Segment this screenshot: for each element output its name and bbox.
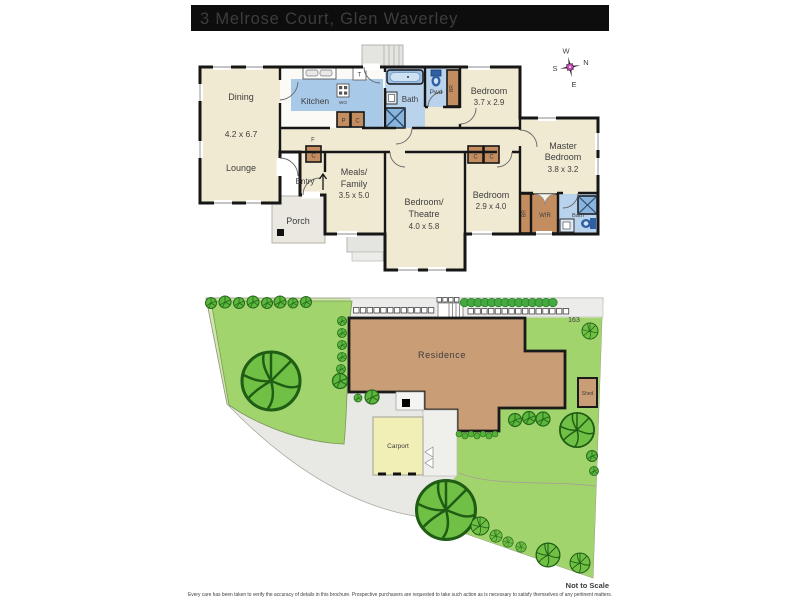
bush-icon xyxy=(219,296,231,308)
tree-icon xyxy=(582,323,598,339)
brochure-page: 3 Melrose Court, Glen Waverley Porch xyxy=(0,0,800,600)
bush-icon xyxy=(338,341,347,350)
vanity-icon xyxy=(386,92,397,104)
room-label-meals-2: Family xyxy=(341,179,368,189)
marker-wall-oven: WO xyxy=(339,100,347,105)
title-bar: 3 Melrose Court, Glen Waverley xyxy=(191,5,609,31)
tree-icon xyxy=(471,517,489,535)
ensuite-shower-icon xyxy=(578,196,597,214)
room-label-powder: Pwd xyxy=(430,89,443,96)
room-label-wir: WIR xyxy=(539,213,551,219)
floor-plan: Porch xyxy=(197,45,601,273)
shed: Shed xyxy=(578,378,597,407)
room-label-meals-1: Meals/ xyxy=(341,167,368,177)
bathtub-icon xyxy=(387,70,423,84)
bush-icon xyxy=(338,353,347,362)
bush-icon xyxy=(288,298,298,308)
tree-icon xyxy=(516,542,526,552)
bush-icon xyxy=(337,365,346,374)
room-label-bath: Bath xyxy=(402,95,418,104)
bush-icon xyxy=(536,412,550,426)
disclaimer: Every care has been taken to verify the … xyxy=(188,592,612,598)
shower-icon xyxy=(385,108,405,128)
toilet-icon xyxy=(431,70,441,87)
marker-fridge: F xyxy=(311,138,315,144)
room-label-porch: Porch xyxy=(286,216,310,226)
tree-icon xyxy=(242,352,300,410)
marker-cupboard-hall-1: C xyxy=(473,155,478,161)
bush-icon xyxy=(338,329,347,338)
room-dims-theatre: 4.0 x 5.8 xyxy=(409,222,440,231)
page-title: 3 Melrose Court, Glen Waverley xyxy=(200,10,458,28)
room-label-lounge: Lounge xyxy=(226,163,256,173)
room-label-theatre-2: Theatre xyxy=(408,209,439,219)
garden-hedge-row xyxy=(460,298,557,307)
marker-pantry: P xyxy=(341,119,345,125)
marker-robe-ensuite: BR xyxy=(522,210,528,217)
marker-cupboard-hall-2: C xyxy=(489,155,494,161)
room-dims-bedroom3: 2.9 x 4.0 xyxy=(476,202,507,211)
rear-step xyxy=(396,392,424,410)
marker-cupboard-entry: C xyxy=(311,154,316,160)
bush-icon xyxy=(274,296,286,308)
room-label-ensuite: Bath xyxy=(572,213,584,219)
tree-icon xyxy=(536,543,560,567)
tree-icon xyxy=(560,413,594,447)
room-dims-meals: 3.5 x 5.0 xyxy=(339,191,370,200)
room-label-entry: Entry xyxy=(296,177,315,186)
bush-icon xyxy=(333,374,348,389)
carport: Carport xyxy=(373,417,423,475)
bush-icon xyxy=(262,298,273,309)
bush-icon xyxy=(365,390,379,404)
bush-icon xyxy=(354,394,362,402)
room-label-dining: Dining xyxy=(228,92,254,102)
marker-robe-hall: BR xyxy=(449,85,455,92)
room-dims-bedroom2: 3.7 x 2.9 xyxy=(474,98,505,107)
compass-rose-icon: W N E S xyxy=(552,47,588,90)
room-dims-dining: 4.2 x 6.7 xyxy=(225,129,258,139)
shed-label: Shed xyxy=(582,391,594,397)
room-label-theatre-1: Bedroom/ xyxy=(404,197,444,207)
rear-gate xyxy=(438,303,463,318)
bush-icon xyxy=(234,298,245,309)
ensuite-vanity-icon xyxy=(560,219,574,232)
footer: Not to Scale Every care has been taken t… xyxy=(188,581,612,598)
room-dims-master: 3.8 x 3.2 xyxy=(548,165,579,174)
bush-icon xyxy=(590,467,599,476)
room-label-master-2: Bedroom xyxy=(545,152,582,162)
compass-south: S xyxy=(552,64,557,73)
bush-icon xyxy=(338,317,347,326)
bush-icon xyxy=(206,298,217,309)
bush-icon xyxy=(301,297,312,308)
compass-east: E xyxy=(571,80,576,89)
side-paving xyxy=(423,410,457,476)
room-label-kitchen: Kitchen xyxy=(301,96,330,106)
scale-note: Not to Scale xyxy=(566,581,609,590)
tree-icon xyxy=(490,530,502,542)
bush-icon xyxy=(247,296,259,308)
tree-icon xyxy=(570,553,590,573)
carport-label: Carport xyxy=(387,443,409,450)
bush-icon xyxy=(509,414,522,427)
residence-label: Residence xyxy=(418,350,466,360)
tree-icon xyxy=(503,537,513,547)
room-label-bedroom3: Bedroom xyxy=(473,190,510,200)
room-label-bedroom2: Bedroom xyxy=(471,86,508,96)
sink-icon xyxy=(303,67,336,79)
tree-icon xyxy=(417,481,476,540)
lot-number: 163 xyxy=(568,317,580,324)
cooktop-icon xyxy=(337,84,349,97)
bush-icon xyxy=(523,412,536,425)
marker-trough: T xyxy=(358,73,362,79)
room-label-master-1: Master xyxy=(549,141,577,151)
compass-west: W xyxy=(562,47,570,56)
marker-cupboard-kitchen: C xyxy=(355,119,360,125)
bush-icon xyxy=(587,451,598,462)
site-plan: Residence Carport Shed xyxy=(206,296,604,578)
compass-north: N xyxy=(583,58,588,67)
